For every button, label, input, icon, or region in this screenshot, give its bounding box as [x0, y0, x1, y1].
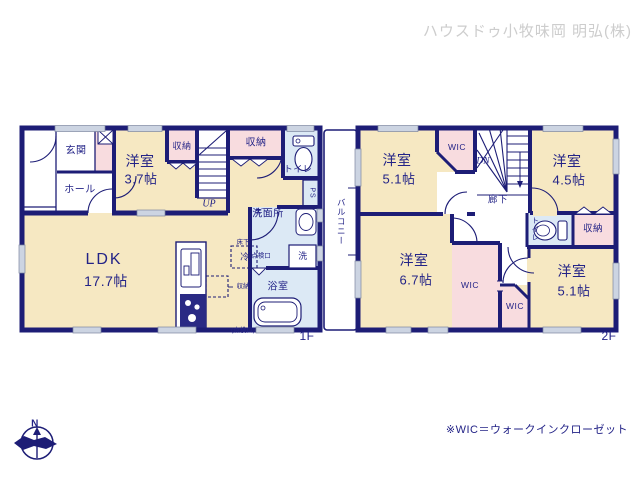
kitchen-counter — [176, 242, 206, 330]
washbasin-icon — [296, 209, 316, 235]
room-label-bedroom37: 洋室 — [126, 153, 155, 169]
room-label-ldk: LDK — [85, 251, 122, 269]
washer-label: 洗 — [298, 251, 308, 261]
floorplan-canvas: ハウスドゥ小牧味岡 明弘(株) ※WIC＝ウォークインクローゼット N 玄関 ホ… — [0, 0, 640, 480]
bathtub-icon — [254, 298, 301, 326]
room-label-bedroom-sw: 洋室 — [400, 252, 429, 268]
stairs-down-label: DN — [476, 157, 489, 168]
room-label-closet-2f: 収納 — [583, 225, 603, 236]
wic-mid-label: WIC — [461, 281, 479, 291]
room-size-bedroom37: 3.7帖 — [124, 173, 157, 188]
balcony-label: バルコニー — [337, 198, 346, 246]
corridor-label: 廊下 — [488, 196, 508, 207]
room-label-hall: ホール — [64, 184, 96, 196]
company-watermark: ハウスドゥ小牧味岡 明弘(株) — [423, 20, 632, 41]
room-label-toilet-1f: トイレ — [284, 164, 313, 174]
room-label-bath: 浴室 — [268, 281, 289, 293]
room-label-toilet-2f: トイレ — [531, 216, 539, 242]
compass-north-label: N — [31, 418, 39, 430]
room-size-bedroom-se: 5.1帖 — [557, 285, 590, 300]
room-size-bedroom-sw: 6.7帖 — [399, 274, 432, 289]
room-label-bedroom-ne: 洋室 — [553, 153, 582, 169]
room-label-entrance: 玄関 — [66, 145, 87, 157]
floor1-label: 1F — [299, 330, 314, 344]
underfloor-storage-label: 床下 収納 (点検口) — [231, 202, 255, 372]
room-label-bedroom-se: 洋室 — [558, 263, 587, 279]
floorplan-drawing — [0, 0, 640, 480]
pillar-marker — [98, 130, 113, 144]
room-label-closet-right: 収納 — [246, 137, 267, 149]
pipe-space-label: PS — [309, 187, 316, 198]
stairs-up-label: UP — [202, 198, 215, 210]
room-size-bedroom-nw: 5.1帖 — [382, 173, 415, 188]
compass-icon — [14, 427, 57, 459]
wic-footnote: ※WIC＝ウォークインクローゼット — [446, 421, 628, 437]
wic-top-label: WIC — [448, 143, 466, 153]
wic-low-label: WIC — [506, 302, 524, 312]
room-label-bedroom-nw: 洋室 — [383, 152, 412, 168]
floor2-label: 2F — [601, 330, 616, 344]
room-size-bedroom-ne: 4.5帖 — [552, 174, 585, 189]
room-label-closet-left: 収納 — [172, 141, 191, 151]
room-size-ldk: 17.7帖 — [84, 273, 128, 289]
